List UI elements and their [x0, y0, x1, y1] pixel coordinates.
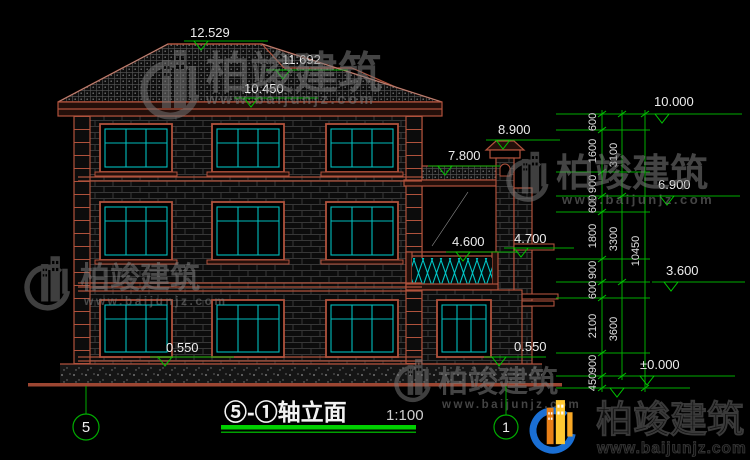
dim-2100: 2100: [587, 314, 599, 338]
cad-canvas: 600 1600 900 600 1800 900 600 2100 900 4…: [0, 0, 750, 460]
watermark-top: 柏竣建筑 www.baijunjz.com: [144, 49, 382, 116]
dim-600-c: 600: [587, 281, 599, 299]
svg-text:www.baijunjz.com: www.baijunjz.com: [83, 294, 228, 308]
window-2f-2: [207, 202, 289, 264]
window-1f-2: [212, 300, 284, 357]
svg-text:10.000: 10.000: [654, 94, 694, 109]
baluster-lattice: [412, 258, 492, 284]
title-underline-thin: [221, 432, 416, 434]
dim-450: 450: [587, 373, 599, 391]
svg-text:柏竣建筑: 柏竣建筑: [80, 261, 200, 295]
svg-text:www.baijunjz.com: www.baijunjz.com: [205, 91, 375, 108]
axis-bubble-left: 5: [73, 386, 99, 440]
svg-text:5: 5: [82, 419, 90, 436]
svg-text:1: 1: [502, 419, 510, 435]
brand-logo-text: 柏竣建筑: [596, 398, 744, 440]
dim-900-c: 900: [587, 355, 599, 373]
window-1f-3: [326, 300, 398, 357]
window-2f-3: [321, 202, 403, 264]
dim-total-10450: 10450: [630, 236, 642, 267]
marker-floor2: 3.600: [652, 263, 745, 291]
svg-text:8.900: 8.900: [498, 122, 531, 137]
window-1f-1: [100, 300, 172, 357]
window-3f-3: [321, 124, 403, 176]
title-underline-thick: [221, 425, 416, 430]
svg-text:柏竣建筑: 柏竣建筑: [556, 153, 708, 195]
elevation-drawing: 600 1600 900 600 1800 900 600 2100 900 4…: [0, 0, 750, 460]
title-block: ⑤-①轴立面 1:100: [221, 399, 424, 433]
svg-text:±0.000: ±0.000: [640, 357, 680, 372]
dim-span-3600: 3600: [608, 317, 620, 341]
brand-logo-url: www.baijunjz.com: [596, 440, 747, 457]
svg-text:0.550: 0.550: [514, 339, 547, 354]
dim-600-a: 600: [587, 113, 599, 131]
dim-1800: 1800: [587, 224, 599, 248]
window-2f-1: [95, 202, 177, 264]
view-scale: 1:100: [386, 407, 424, 424]
left-quoin: [74, 116, 90, 364]
right-quoin: [406, 116, 422, 364]
window-3f-1: [95, 124, 177, 176]
window-1f-wing: [437, 300, 491, 357]
watermark-left: 柏竣建筑 www.baijunjz.com: [27, 256, 227, 308]
dim-span-3300: 3300: [608, 227, 620, 251]
svg-text:4.700: 4.700: [514, 231, 547, 246]
marker-ground: ±0.000: [628, 357, 735, 385]
marker-parapet-top: 10.000: [645, 94, 742, 123]
svg-text:12.529: 12.529: [190, 25, 230, 40]
svg-text:7.800: 7.800: [448, 148, 481, 163]
svg-text:4.600: 4.600: [452, 234, 485, 249]
svg-text:3.600: 3.600: [666, 263, 699, 278]
dim-900-b: 900: [587, 261, 599, 279]
svg-text:www.baijunjz.com: www.baijunjz.com: [561, 192, 714, 207]
window-3f-2: [207, 124, 289, 176]
svg-text:柏竣建筑: 柏竣建筑: [438, 365, 558, 399]
svg-text:0.550: 0.550: [166, 340, 199, 355]
view-title: ⑤-①轴立面: [224, 399, 347, 425]
watermark-right: 柏竣建筑 www.baijunjz.com: [509, 152, 714, 207]
